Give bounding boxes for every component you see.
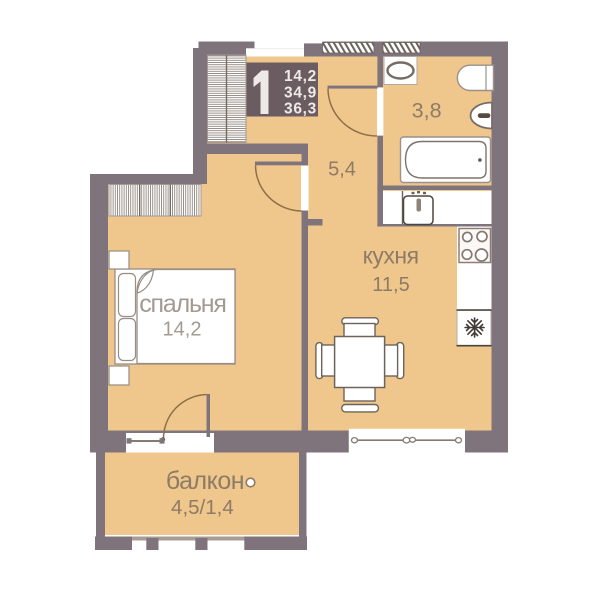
svg-text:3,8: 3,8 <box>412 99 442 123</box>
svg-text:кухня: кухня <box>363 243 419 269</box>
svg-text:4,5/1,4: 4,5/1,4 <box>171 496 234 519</box>
svg-text:балкон: балкон <box>166 467 244 495</box>
svg-text:34,9: 34,9 <box>284 85 317 102</box>
svg-text:5,4: 5,4 <box>328 159 356 181</box>
svg-text:11,5: 11,5 <box>372 274 409 296</box>
svg-text:14,2: 14,2 <box>284 68 317 85</box>
svg-text:14,2: 14,2 <box>163 319 202 341</box>
svg-text:спальня: спальня <box>139 290 226 318</box>
svg-text:36,3: 36,3 <box>284 101 317 118</box>
